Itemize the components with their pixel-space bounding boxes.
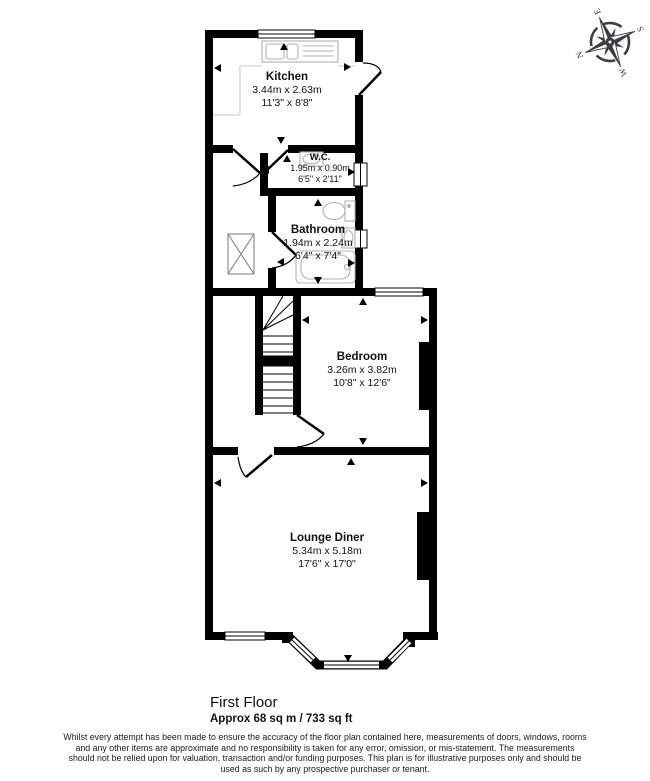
room-name: Bathroom [283, 224, 352, 237]
room-dim-imperial: 6'4" x 7'4" [283, 250, 352, 263]
room-name: W.C. [290, 152, 350, 163]
disclaimer-text: Whilst every attempt has been made to en… [62, 732, 588, 775]
wc-window [354, 163, 367, 186]
room-dim-metric: 1.95m x 0.90m [290, 163, 350, 174]
room-dim-imperial: 10'8" x 12'6" [327, 377, 396, 390]
skylight [228, 234, 254, 274]
kitchen-label: Kitchen 3.44m x 2.63m 11'3" x 8'8" [252, 71, 321, 110]
kitchen-exterior-door [359, 63, 381, 95]
room-name: Kitchen [252, 71, 321, 84]
staircase [263, 296, 293, 413]
bedroom-window [375, 288, 423, 296]
room-name: Lounge Diner [290, 532, 364, 545]
bedroom-label: Bedroom 3.26m x 3.82m 10'8" x 12'6" [327, 351, 396, 390]
room-dim-metric: 3.26m x 3.82m [327, 364, 396, 377]
floor-title: First Floor [210, 694, 278, 711]
compass-s: S [635, 25, 646, 34]
lounge-label: Lounge Diner 5.34m x 5.18m 17'6" x 17'0" [290, 532, 364, 571]
bathroom-window [354, 230, 367, 248]
kitchen-sink [262, 41, 338, 62]
toilet [323, 201, 355, 221]
floorplan-page: N E S W Kitchen 3.44m x 2.63m 11'3" x 8'… [0, 0, 650, 781]
kitchen-door [233, 149, 260, 186]
bathroom-label: Bathroom 1.94m x 2.24m 6'4" x 7'4" [283, 224, 352, 263]
floorplan-drawing: N E S W [0, 0, 650, 700]
room-dim-imperial: 6'5" x 2'11" [290, 174, 350, 185]
compass-e: E [591, 7, 603, 16]
room-dim-metric: 1.94m x 2.24m [283, 237, 352, 250]
bedroom-door [297, 415, 324, 447]
room-dim-metric: 5.34m x 5.18m [290, 545, 364, 558]
floor-area: Approx 68 sq m / 733 sq ft [210, 712, 353, 726]
room-dim-imperial: 11'3" x 8'8" [252, 97, 321, 110]
kitchen-window [258, 30, 315, 38]
lounge-window [225, 632, 265, 640]
lounge-door [238, 455, 272, 477]
room-dim-imperial: 17'6" x 17'0" [290, 558, 364, 571]
room-dim-metric: 3.44m x 2.63m [252, 84, 321, 97]
room-name: Bedroom [327, 351, 396, 364]
wc-label: W.C. 1.95m x 0.90m 6'5" x 2'11" [290, 152, 350, 185]
compass-n: N [574, 49, 586, 59]
bay-window [287, 635, 414, 665]
compass-rose-icon: N E S W [561, 0, 650, 91]
compass-w: W [616, 66, 629, 78]
